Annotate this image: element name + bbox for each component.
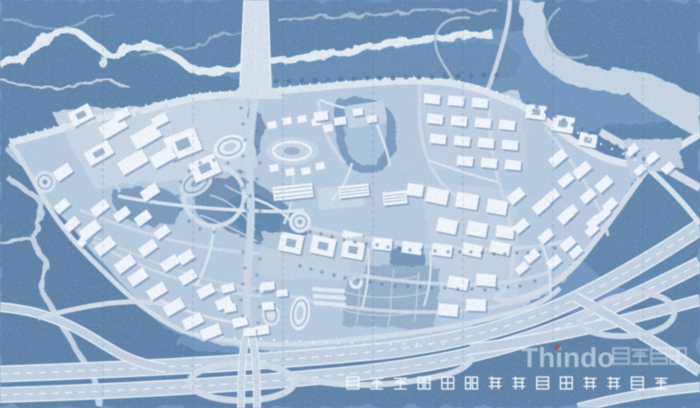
svg-text:Thindo: Thindo bbox=[521, 342, 614, 373]
